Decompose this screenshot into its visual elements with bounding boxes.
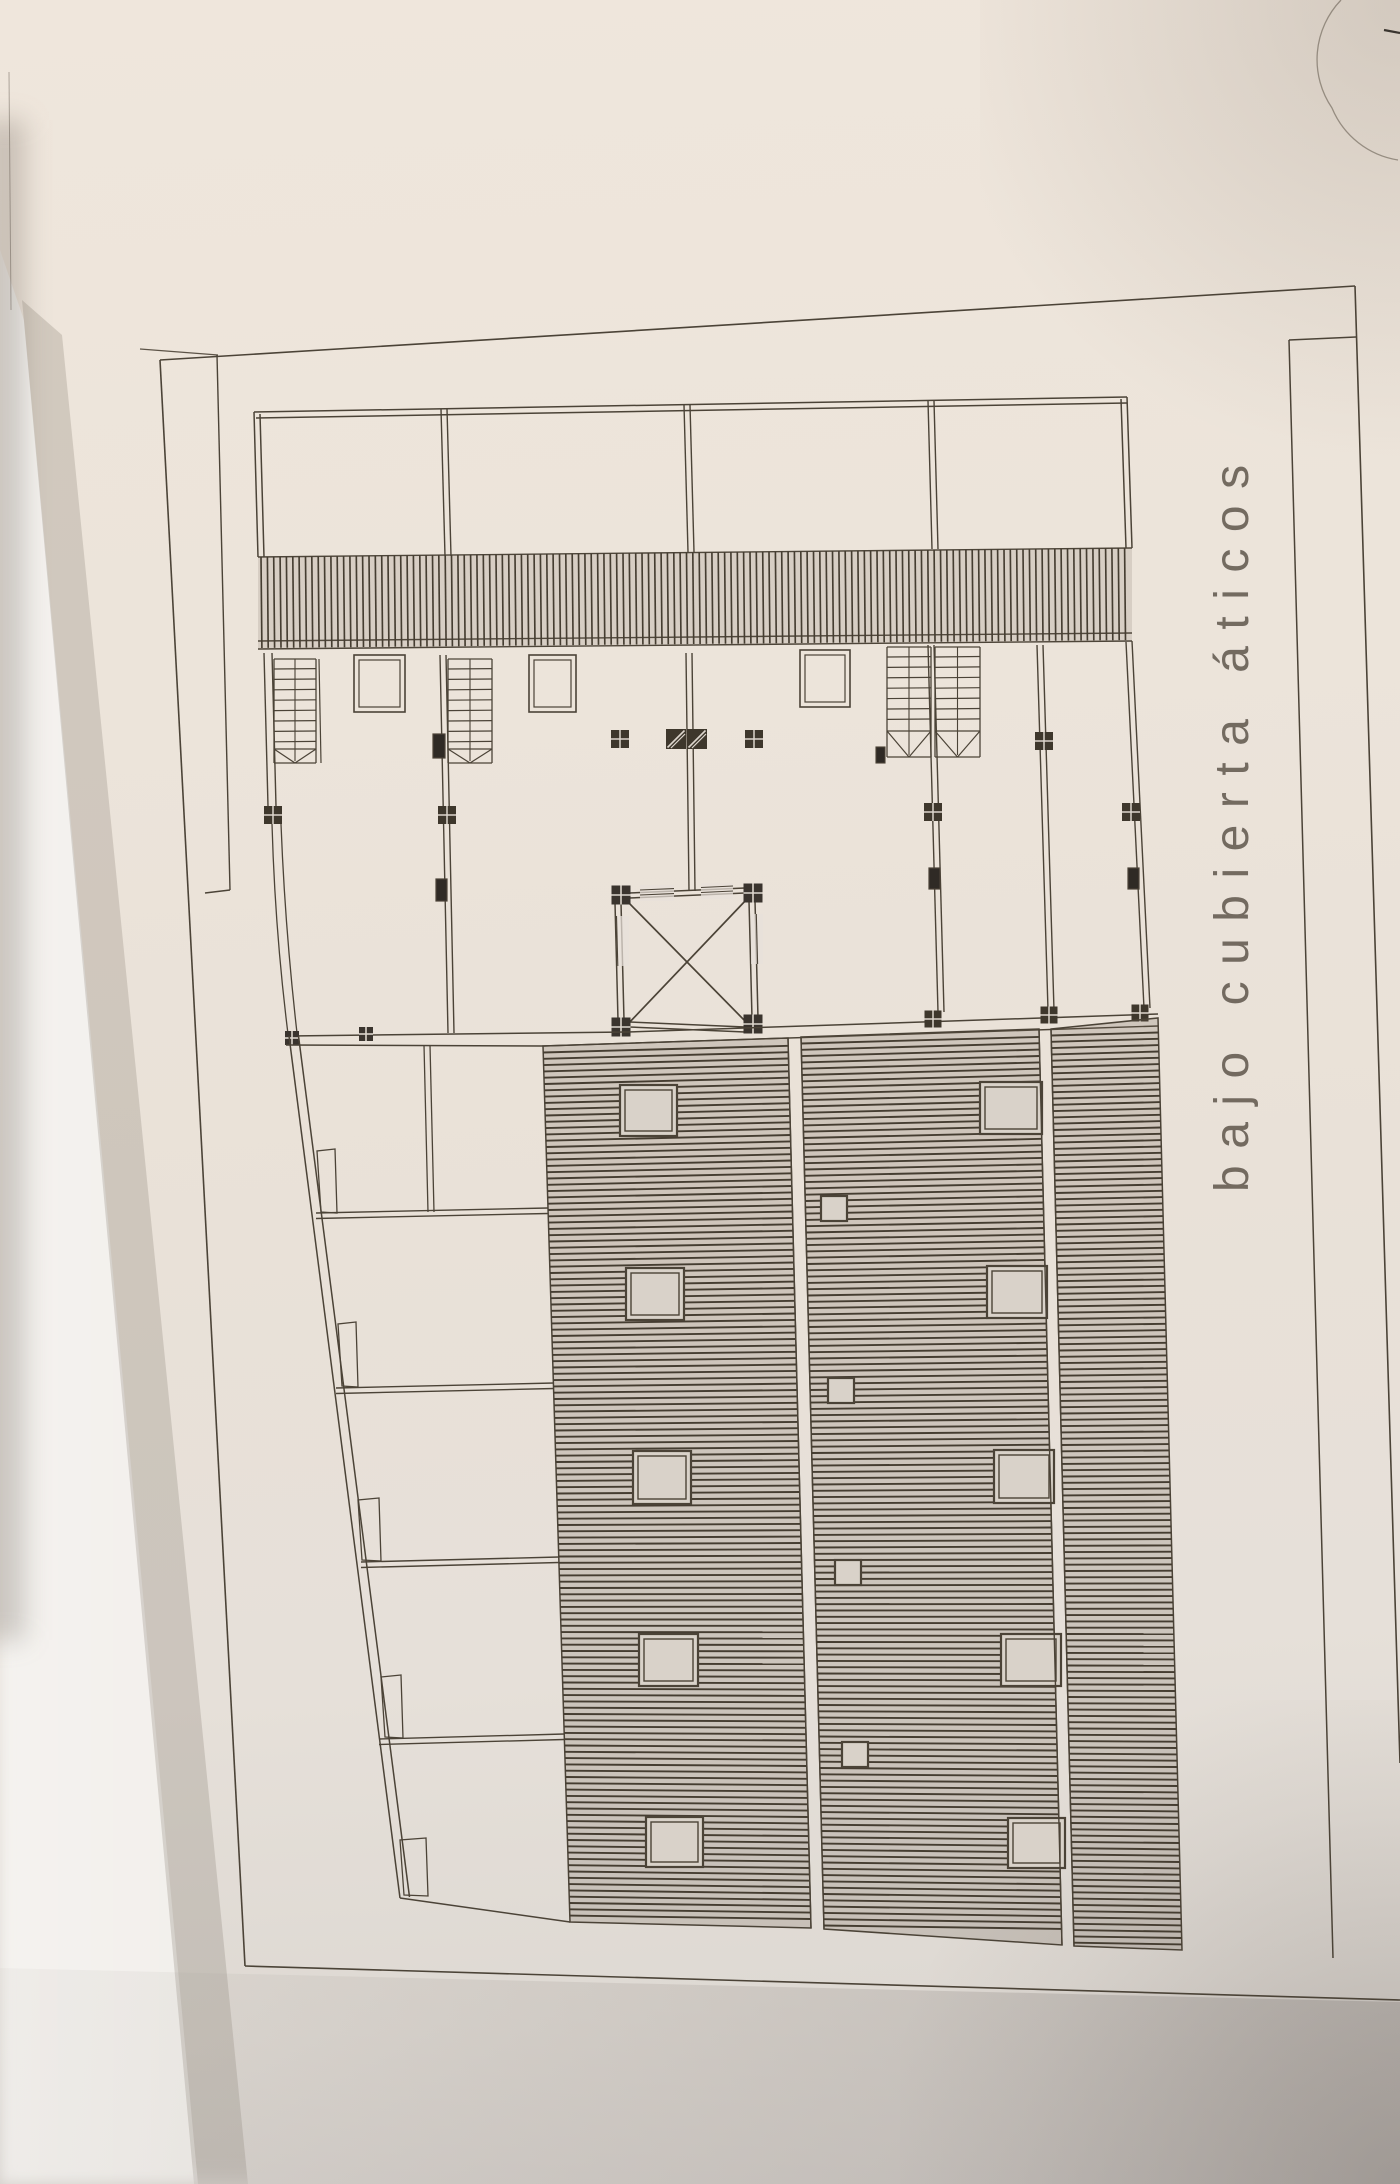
svg-text:bajo cubierta áticos: bajo cubierta áticos bbox=[1206, 448, 1259, 1192]
